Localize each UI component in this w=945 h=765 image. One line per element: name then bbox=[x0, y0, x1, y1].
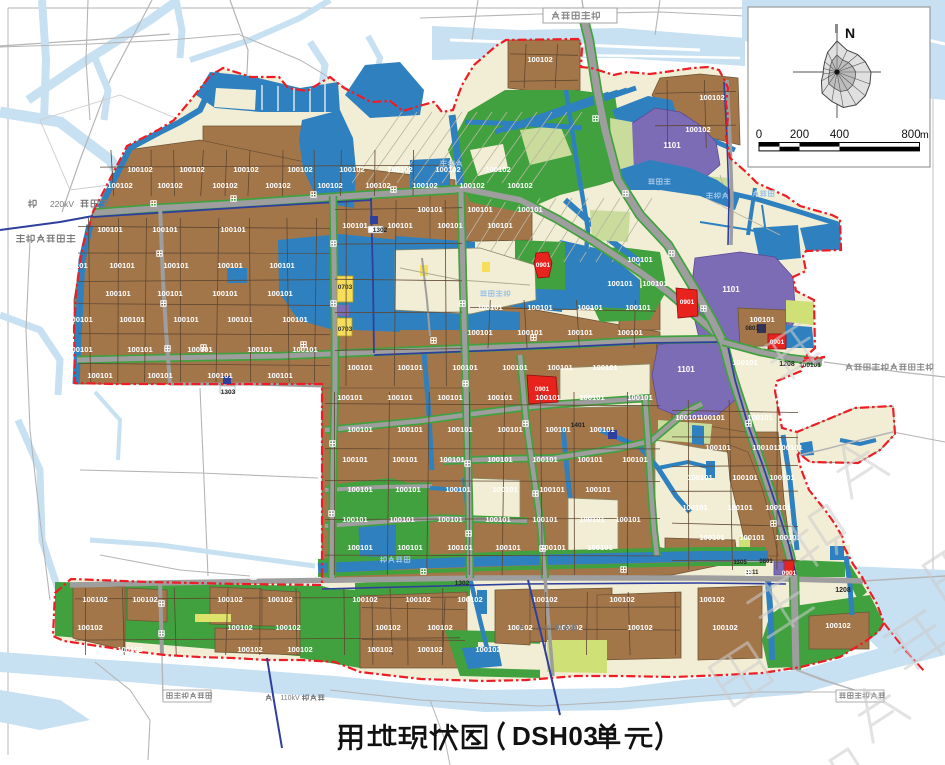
svg-text:100101: 100101 bbox=[682, 503, 708, 512]
svg-text:100101: 100101 bbox=[119, 315, 145, 324]
svg-text:110kV: 110kV bbox=[533, 625, 553, 632]
svg-text:100102: 100102 bbox=[699, 93, 724, 102]
svg-text:100101: 100101 bbox=[437, 393, 463, 402]
svg-text:100102: 100102 bbox=[459, 181, 484, 190]
svg-text:100101: 100101 bbox=[739, 533, 765, 542]
svg-text:100101: 100101 bbox=[579, 393, 605, 402]
svg-text:100101: 100101 bbox=[347, 485, 373, 494]
svg-text:100101: 100101 bbox=[452, 363, 478, 372]
svg-text:100101: 100101 bbox=[675, 413, 701, 422]
svg-text:100101: 100101 bbox=[535, 393, 561, 402]
svg-text:100101: 100101 bbox=[397, 425, 423, 434]
svg-text:100101: 100101 bbox=[439, 455, 465, 464]
svg-text:100101: 100101 bbox=[387, 393, 413, 402]
svg-text:100101: 100101 bbox=[163, 261, 189, 270]
svg-text:100101: 100101 bbox=[147, 371, 173, 380]
svg-text:200: 200 bbox=[790, 129, 809, 141]
svg-text:100102: 100102 bbox=[179, 165, 204, 174]
svg-text:100101: 100101 bbox=[389, 515, 415, 524]
svg-text:100101: 100101 bbox=[485, 515, 511, 524]
svg-text:100101: 100101 bbox=[342, 455, 368, 464]
svg-text:100101: 100101 bbox=[699, 533, 725, 542]
svg-text:100102: 100102 bbox=[712, 623, 737, 632]
svg-text:100101: 100101 bbox=[540, 543, 566, 552]
svg-text:100101: 100101 bbox=[705, 443, 731, 452]
svg-text:1101: 1101 bbox=[663, 141, 681, 150]
svg-text:100101: 100101 bbox=[487, 393, 513, 402]
svg-text:100101: 100101 bbox=[437, 221, 463, 230]
svg-text:100101: 100101 bbox=[247, 345, 273, 354]
svg-text:DSH03: DSH03 bbox=[512, 721, 598, 751]
svg-text:1305: 1305 bbox=[733, 560, 747, 566]
svg-text:100101: 100101 bbox=[625, 303, 651, 312]
svg-text:100101: 100101 bbox=[749, 315, 775, 324]
svg-text:100102: 100102 bbox=[352, 595, 377, 604]
svg-text:100101: 100101 bbox=[532, 455, 558, 464]
svg-text:100101: 100101 bbox=[267, 371, 293, 380]
svg-text:0: 0 bbox=[756, 129, 762, 141]
svg-text:100101: 100101 bbox=[447, 425, 473, 434]
svg-text:100101: 100101 bbox=[567, 328, 593, 337]
svg-text:100101: 100101 bbox=[292, 345, 318, 354]
svg-text:0703: 0703 bbox=[338, 326, 353, 333]
svg-text:100102: 100102 bbox=[77, 623, 102, 632]
svg-text:1302: 1302 bbox=[373, 227, 388, 234]
svg-text:100102: 100102 bbox=[339, 165, 364, 174]
svg-text:100101: 100101 bbox=[127, 345, 153, 354]
svg-text:100101: 100101 bbox=[445, 485, 471, 494]
svg-text:100101: 100101 bbox=[157, 289, 183, 298]
svg-text:100101: 100101 bbox=[492, 485, 518, 494]
svg-text:100101: 100101 bbox=[282, 315, 308, 324]
svg-text:100101: 100101 bbox=[105, 289, 131, 298]
svg-text:100101: 100101 bbox=[769, 473, 795, 482]
svg-text:100101: 100101 bbox=[517, 205, 543, 214]
svg-text:100101: 100101 bbox=[67, 345, 93, 354]
svg-text:100101: 100101 bbox=[777, 443, 803, 452]
svg-text:100102: 100102 bbox=[387, 165, 412, 174]
svg-text:100101: 100101 bbox=[527, 303, 553, 312]
svg-text:100102: 100102 bbox=[367, 645, 392, 654]
svg-text:100102: 100102 bbox=[405, 595, 430, 604]
svg-text:100101: 100101 bbox=[337, 393, 363, 402]
svg-text:100101: 100101 bbox=[395, 485, 421, 494]
svg-text:100101: 100101 bbox=[539, 485, 565, 494]
svg-text:0901: 0901 bbox=[536, 262, 551, 269]
svg-text:100101: 100101 bbox=[467, 205, 493, 214]
svg-text:100101: 100101 bbox=[387, 221, 413, 230]
svg-text:100101: 100101 bbox=[220, 225, 246, 234]
svg-text:100101: 100101 bbox=[587, 543, 613, 552]
svg-text:110kV: 110kV bbox=[280, 695, 300, 702]
svg-text:100101: 100101 bbox=[97, 225, 123, 234]
svg-text:100102: 100102 bbox=[527, 55, 552, 64]
svg-text:100101: 100101 bbox=[87, 371, 113, 380]
svg-text:220kV: 220kV bbox=[50, 199, 74, 209]
svg-text:100101: 100101 bbox=[642, 279, 668, 288]
svg-text:100101: 100101 bbox=[495, 543, 521, 552]
svg-text:100101: 100101 bbox=[467, 328, 493, 337]
svg-text:100102: 100102 bbox=[212, 181, 237, 190]
svg-text:100101: 100101 bbox=[617, 328, 643, 337]
svg-text:m: m bbox=[920, 129, 929, 141]
svg-text:100102: 100102 bbox=[507, 181, 532, 190]
svg-text:100101: 100101 bbox=[732, 358, 758, 367]
svg-text:100101: 100101 bbox=[342, 221, 368, 230]
svg-text:1101: 1101 bbox=[677, 365, 695, 374]
svg-text:1303: 1303 bbox=[221, 389, 236, 396]
svg-text:100101: 100101 bbox=[589, 425, 615, 434]
svg-text:100102: 100102 bbox=[825, 621, 850, 630]
svg-text:N: N bbox=[845, 25, 855, 41]
svg-text:0801: 0801 bbox=[745, 326, 759, 332]
svg-text:100101: 100101 bbox=[545, 425, 571, 434]
svg-text:100102: 100102 bbox=[275, 623, 300, 632]
svg-text:100102: 100102 bbox=[412, 181, 437, 190]
svg-text:100101: 100101 bbox=[579, 515, 605, 524]
svg-text:100102: 100102 bbox=[485, 165, 510, 174]
svg-text:100101: 100101 bbox=[547, 363, 573, 372]
svg-text:100101: 100101 bbox=[109, 261, 135, 270]
svg-text:100101: 100101 bbox=[622, 455, 648, 464]
svg-text:100102: 100102 bbox=[227, 623, 252, 632]
svg-text:100101: 100101 bbox=[447, 543, 473, 552]
svg-text:100101: 100101 bbox=[497, 425, 523, 434]
svg-text:100102: 100102 bbox=[532, 595, 557, 604]
svg-text:100101: 100101 bbox=[392, 455, 418, 464]
svg-text:100101: 100101 bbox=[502, 363, 528, 372]
svg-text:100101: 100101 bbox=[212, 289, 238, 298]
svg-text:100102: 100102 bbox=[237, 645, 262, 654]
svg-text:100102: 100102 bbox=[117, 645, 142, 654]
svg-text:100101: 100101 bbox=[487, 221, 513, 230]
svg-text:100101: 100101 bbox=[347, 425, 373, 434]
svg-text:100101: 100101 bbox=[173, 315, 199, 324]
svg-text:100101: 100101 bbox=[62, 261, 88, 270]
svg-text:100101: 100101 bbox=[752, 443, 778, 452]
svg-text:100102: 100102 bbox=[132, 595, 157, 604]
svg-text:100102: 100102 bbox=[417, 645, 442, 654]
svg-text:100102: 100102 bbox=[685, 125, 710, 134]
svg-text:100101: 100101 bbox=[477, 303, 503, 312]
svg-text:100102: 100102 bbox=[107, 181, 132, 190]
svg-text:100102: 100102 bbox=[157, 181, 182, 190]
svg-text:100101: 100101 bbox=[227, 315, 253, 324]
svg-text:100101: 100101 bbox=[607, 279, 633, 288]
svg-text:100101: 100101 bbox=[627, 393, 653, 402]
svg-text:100101: 100101 bbox=[269, 261, 295, 270]
svg-text:100102: 100102 bbox=[457, 595, 482, 604]
svg-text:100102: 100102 bbox=[82, 595, 107, 604]
svg-text:100101: 100101 bbox=[732, 473, 758, 482]
svg-text:100102: 100102 bbox=[287, 645, 312, 654]
svg-text:100101: 100101 bbox=[207, 371, 233, 380]
svg-text:100101: 100101 bbox=[347, 363, 373, 372]
svg-text:100102: 100102 bbox=[127, 165, 152, 174]
svg-text:100102: 100102 bbox=[267, 595, 292, 604]
svg-text:0703: 0703 bbox=[338, 284, 353, 291]
svg-text:0801: 0801 bbox=[759, 559, 773, 565]
svg-text:100101: 100101 bbox=[217, 261, 243, 270]
svg-text:100101: 100101 bbox=[487, 455, 513, 464]
svg-text:1401: 1401 bbox=[571, 422, 586, 429]
svg-text:100102: 100102 bbox=[233, 165, 258, 174]
svg-text:800: 800 bbox=[901, 129, 920, 141]
svg-text:100102: 100102 bbox=[375, 623, 400, 632]
svg-text:100101: 100101 bbox=[417, 205, 443, 214]
svg-text:100102: 100102 bbox=[365, 181, 390, 190]
svg-text:100101: 100101 bbox=[727, 503, 753, 512]
svg-text:1302: 1302 bbox=[455, 580, 470, 587]
svg-text:100102: 100102 bbox=[265, 181, 290, 190]
svg-text:100101: 100101 bbox=[152, 225, 178, 234]
svg-text:100101: 100101 bbox=[437, 515, 463, 524]
svg-text:100101: 100101 bbox=[699, 413, 725, 422]
svg-text:1101: 1101 bbox=[722, 285, 740, 294]
svg-text:100102: 100102 bbox=[475, 645, 500, 654]
svg-text:100101: 100101 bbox=[347, 543, 373, 552]
svg-text:100101: 100101 bbox=[67, 315, 93, 324]
svg-text:100101: 100101 bbox=[532, 515, 558, 524]
svg-text:100102: 100102 bbox=[609, 595, 634, 604]
svg-text:100101: 100101 bbox=[627, 255, 653, 264]
svg-text:100101: 100101 bbox=[397, 543, 423, 552]
svg-text:100102: 100102 bbox=[217, 595, 242, 604]
svg-text:100102: 100102 bbox=[287, 165, 312, 174]
svg-text:100101: 100101 bbox=[267, 289, 293, 298]
svg-text:0901: 0901 bbox=[680, 299, 695, 306]
svg-text:0901: 0901 bbox=[535, 386, 550, 393]
svg-text:100102: 100102 bbox=[317, 181, 342, 190]
svg-text:100101: 100101 bbox=[592, 363, 618, 372]
svg-text:100102: 100102 bbox=[627, 623, 652, 632]
svg-text:100101: 100101 bbox=[397, 363, 423, 372]
svg-text:1208: 1208 bbox=[835, 587, 851, 594]
svg-text:100101: 100101 bbox=[687, 473, 713, 482]
svg-text:100101: 100101 bbox=[585, 485, 611, 494]
svg-text:100102: 100102 bbox=[427, 623, 452, 632]
svg-text:400: 400 bbox=[830, 129, 849, 141]
svg-text:100101: 100101 bbox=[615, 515, 641, 524]
svg-text:100101: 100101 bbox=[765, 503, 791, 512]
svg-text:100101: 100101 bbox=[577, 303, 603, 312]
svg-text:100101: 100101 bbox=[342, 515, 368, 524]
svg-text:100102: 100102 bbox=[699, 595, 724, 604]
svg-text:100101: 100101 bbox=[577, 455, 603, 464]
